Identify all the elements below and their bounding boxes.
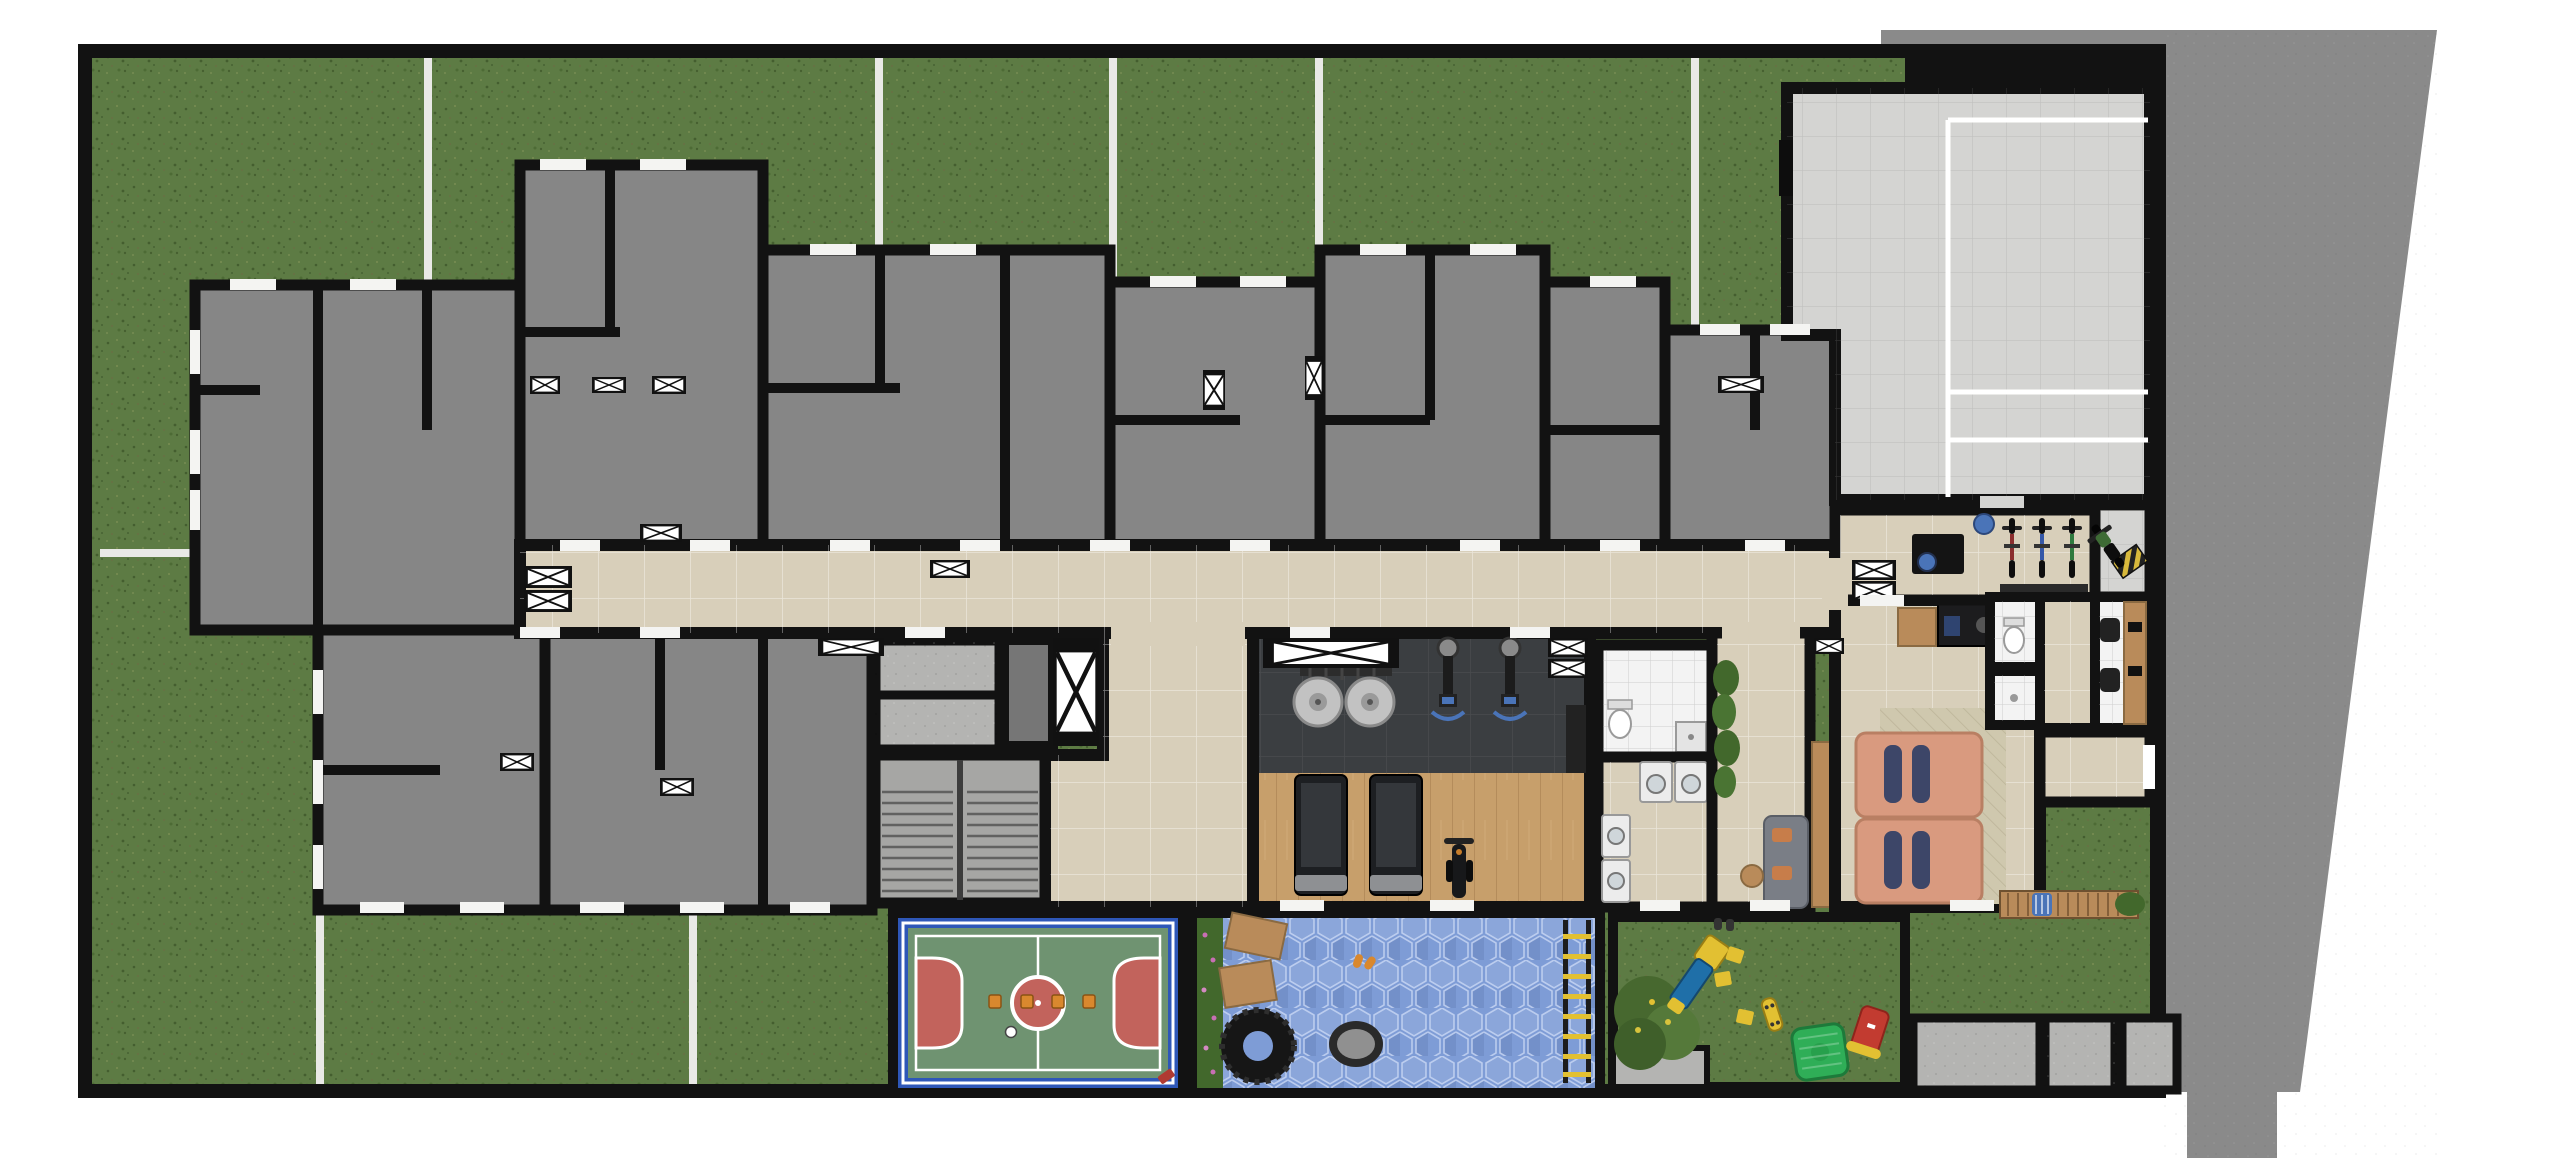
cone <box>989 995 1001 1008</box>
office-desk <box>2124 602 2146 724</box>
service-boxes <box>1913 1018 2177 1090</box>
elevator-shaft <box>526 567 570 586</box>
party-sofa <box>1856 733 1982 903</box>
lounge-sofa <box>1764 816 1808 908</box>
gym-cabinet <box>1566 705 1586 773</box>
shaft <box>1550 639 1587 655</box>
unit <box>763 250 1110 548</box>
side-table <box>1741 865 1763 887</box>
lounge-hall <box>1712 622 1810 908</box>
gym <box>1253 633 1590 907</box>
elevator-shaft <box>526 591 570 610</box>
futsal-court <box>893 913 1183 1093</box>
goal-area-left <box>916 958 962 1048</box>
shaft <box>642 525 681 541</box>
unit <box>520 165 763 548</box>
corridor-hall-opening <box>1111 622 1245 646</box>
garden-bush <box>2115 892 2145 916</box>
toilet-tank <box>1608 700 1632 709</box>
unit <box>545 630 872 910</box>
office-hall <box>2040 597 2095 728</box>
big-elevator-shaft <box>1055 645 1097 739</box>
walkway-door-opening <box>2143 745 2155 789</box>
shaft <box>821 639 882 655</box>
plaza-entry-opening <box>1980 496 2024 508</box>
sofa-cushion <box>1912 745 1930 803</box>
blue-ball <box>1974 514 1994 534</box>
cone <box>1083 995 1095 1008</box>
building-core <box>875 640 1053 903</box>
trampoline <box>1329 1021 1383 1067</box>
crossfit-tire <box>1221 1009 1295 1083</box>
divider <box>316 912 324 1084</box>
toilet <box>2004 627 2024 653</box>
shaft <box>1204 373 1224 408</box>
shaft <box>661 779 692 795</box>
sofa-cushion <box>1884 745 1902 803</box>
bench-garden <box>2000 891 2145 918</box>
divider <box>424 58 432 288</box>
wood-platform <box>1219 960 1277 1008</box>
washing-machine <box>1602 860 1630 902</box>
bike-bay <box>2082 505 2150 597</box>
reception-chair <box>1918 553 1936 571</box>
sofa-cushion <box>1912 831 1930 889</box>
floor-plan-image <box>0 0 2560 1161</box>
reception-desk <box>1912 534 1964 574</box>
soccer-ball <box>1006 1027 1017 1038</box>
shaft <box>1306 359 1323 397</box>
kitchen-counter-wood <box>1898 608 1936 646</box>
divider <box>1315 58 1323 270</box>
divider <box>875 58 883 253</box>
core-pier <box>1004 640 1053 746</box>
stair-stringer <box>957 760 963 900</box>
sofa-cushion <box>1884 831 1902 889</box>
pad <box>1714 971 1732 988</box>
play-rubber-area <box>1192 913 1600 1093</box>
laundry <box>1598 757 1712 907</box>
playhouse <box>1791 1023 1850 1082</box>
shaft <box>531 377 559 393</box>
shaft <box>653 377 684 393</box>
washing-machine <box>1675 762 1707 802</box>
shaft <box>501 754 532 770</box>
monitor <box>2128 622 2142 632</box>
monitor <box>2128 666 2142 676</box>
unit <box>1545 282 1665 548</box>
gym-bathroom <box>1598 645 1712 757</box>
corridor-entry-opening <box>1822 558 1848 610</box>
washing-machine <box>1640 762 1672 802</box>
treadmill <box>1295 775 1347 895</box>
washing-machine <box>1602 815 1630 857</box>
cone <box>1021 995 1033 1008</box>
divider <box>1691 58 1699 330</box>
lounge-opening <box>1722 622 1800 644</box>
shaft <box>593 378 624 392</box>
office <box>2095 597 2150 728</box>
cone <box>1052 995 1064 1008</box>
treadmill <box>1370 775 1422 895</box>
plaza-door-niche <box>1779 140 1793 196</box>
office-chair <box>2100 668 2120 692</box>
shaft <box>1720 377 1762 392</box>
unit <box>195 285 520 630</box>
goal-area-right <box>1114 958 1160 1048</box>
shaft <box>932 561 969 577</box>
flower-hedge <box>1197 918 1223 1088</box>
shaft <box>1550 660 1587 676</box>
divider <box>689 912 697 1084</box>
gym-shaft <box>1268 640 1393 666</box>
entry-walkway <box>2040 732 2155 802</box>
shaft <box>1815 639 1843 653</box>
toilet <box>1609 710 1631 738</box>
restrooms <box>1990 597 2040 725</box>
entrance-plaza <box>1779 88 2150 508</box>
sidewalk-texture <box>2160 30 2440 1158</box>
office-chair <box>2100 618 2120 642</box>
